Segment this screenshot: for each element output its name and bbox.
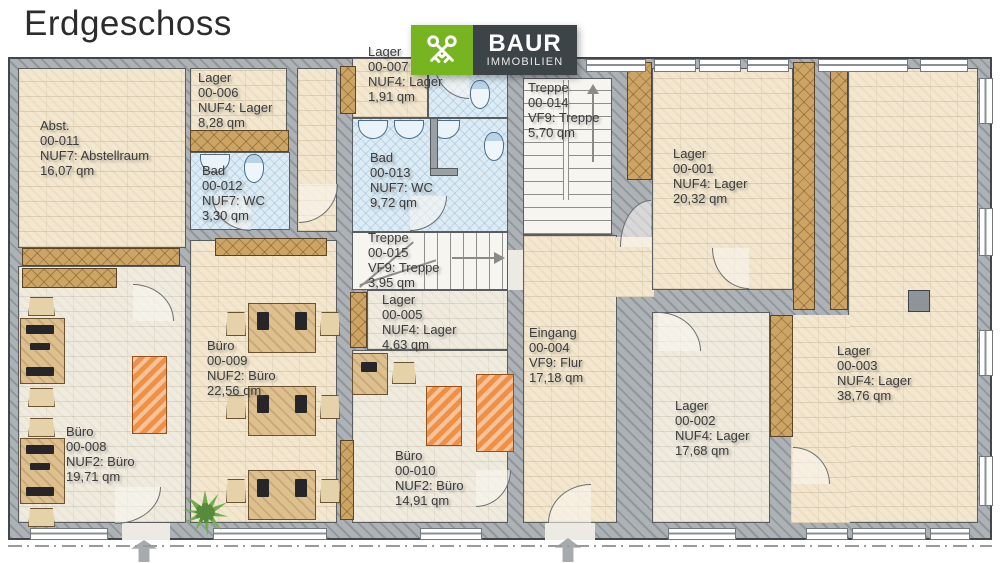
- room-label-00-005: Lager00-005 NUF4: Lager4,63 qm: [382, 292, 456, 352]
- monitor-icon: [257, 479, 269, 497]
- monitor-icon: [30, 463, 50, 470]
- wood-column: [350, 292, 367, 348]
- monitor-icon: [257, 312, 269, 330]
- toilet-icon: [484, 132, 504, 161]
- main-entrance-opening: [545, 523, 595, 540]
- window: [979, 456, 993, 506]
- wood-beam: [22, 248, 180, 266]
- room-label-00-004: Eingang00-004 VF9: Flur17,18 qm: [529, 325, 583, 385]
- window: [30, 528, 108, 540]
- room-label-00-015: Treppe00-015 VF9: Treppe3,95 qm: [368, 230, 440, 290]
- room-label-00-003: Lager00-003 NUF4: Lager38,76 qm: [837, 343, 911, 403]
- monitor-icon: [26, 487, 54, 496]
- room-label-00-011: Abst.00-011 NUF7: Abstellraum16,07 qm: [40, 118, 149, 178]
- monitor-icon: [26, 445, 54, 454]
- office-chair: [226, 395, 246, 419]
- monitor-icon: [295, 479, 307, 497]
- cabinet: [352, 353, 388, 395]
- logo-brand: BAUR: [488, 32, 561, 56]
- entrance-arrow-icon: [555, 538, 581, 562]
- office-chair: [226, 479, 246, 503]
- entrance-door-opening: [122, 523, 170, 540]
- stair-direction-line: [452, 257, 496, 259]
- desk: [20, 438, 65, 504]
- window: [979, 208, 993, 256]
- office-chair: [28, 508, 55, 527]
- window: [930, 528, 970, 540]
- wood-shelf: [22, 268, 117, 288]
- wood-wall: [770, 315, 793, 437]
- monitor-icon: [295, 312, 307, 330]
- window: [920, 59, 968, 72]
- window: [747, 59, 789, 72]
- sofa: [132, 356, 167, 434]
- window: [979, 78, 993, 124]
- appliance-icon: [361, 362, 377, 372]
- page-title: Erdgeschoss: [24, 4, 232, 44]
- room-label-00-001: Lager00-001 NUF4: Lager20,32 qm: [673, 146, 747, 206]
- office-chair: [320, 312, 340, 336]
- logo-baur-immobilien: BAUR IMMOBILIEN: [411, 25, 577, 75]
- window: [420, 528, 482, 540]
- window: [806, 528, 848, 540]
- logo-text-block: BAUR IMMOBILIEN: [473, 25, 577, 75]
- desk: [20, 318, 65, 384]
- wood-beam: [190, 130, 289, 152]
- room-label-00-009: Büro00-009 NUF2: Büro22,56 qm: [207, 338, 276, 398]
- window: [654, 59, 696, 72]
- wood-wall: [793, 62, 815, 310]
- room-label-00-008: Büro00-008 NUF2: Büro19,71 qm: [66, 424, 135, 484]
- logo-subtitle: IMMOBILIEN: [487, 56, 564, 69]
- window: [668, 528, 736, 540]
- room-label-00-010: Büro00-010 NUF2: Büro14,91 qm: [395, 448, 464, 508]
- wood-wall: [830, 62, 848, 310]
- wood-column: [340, 66, 356, 114]
- room-label-00-006: Lager00-006 NUF4: Lager8,28 qm: [198, 70, 272, 130]
- window: [699, 59, 741, 72]
- window: [979, 330, 993, 376]
- monitor-icon: [26, 367, 54, 376]
- wood-column: [627, 62, 652, 180]
- office-chair: [28, 418, 55, 437]
- site-boundary-line: [8, 545, 992, 547]
- window: [852, 528, 926, 540]
- monitor-icon: [30, 343, 50, 350]
- monitor-icon: [295, 395, 307, 413]
- entrance-arrow-icon: [131, 540, 157, 562]
- office-chair: [28, 388, 55, 407]
- room-label-00-014: Treppe00-014 VF9: Treppe5,70 qm: [528, 80, 600, 140]
- partition-wall: [430, 168, 458, 176]
- window: [213, 528, 327, 540]
- desk-island: [248, 470, 316, 520]
- sofa: [426, 386, 462, 446]
- toilet-icon: [470, 80, 490, 109]
- office-chair: [320, 479, 340, 503]
- office-chair: [320, 395, 340, 419]
- crossed-keys-icon: [411, 25, 473, 75]
- wood-beam: [215, 238, 327, 256]
- monitor-icon: [26, 325, 54, 334]
- room-label-00-002: Lager00-002 NUF4: Lager17,68 qm: [675, 398, 749, 458]
- office-chair: [392, 362, 416, 384]
- room-label-00-013: Bad00-013 NUF7: WC9,72 qm: [370, 150, 433, 210]
- door-opening: [508, 250, 523, 290]
- office-chair: [28, 297, 55, 316]
- column: [908, 290, 930, 312]
- room-label-00-012: Bad00-012 NUF7: WC3,30 qm: [202, 163, 265, 223]
- window: [818, 59, 908, 72]
- wood-column: [340, 440, 354, 520]
- sofa: [476, 374, 514, 452]
- floor-plan-page: Erdgeschoss: [0, 0, 1000, 563]
- window: [586, 59, 646, 72]
- office-chair: [226, 312, 246, 336]
